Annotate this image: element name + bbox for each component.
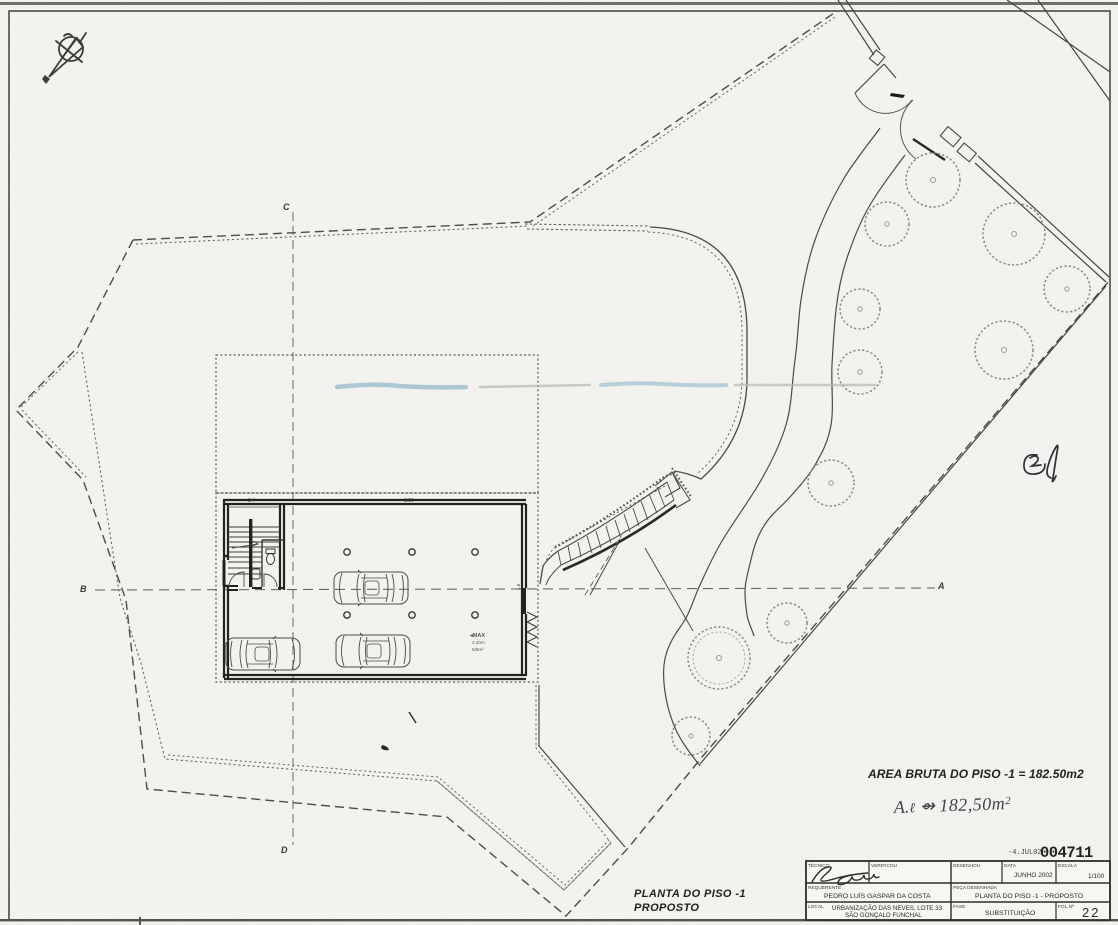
svg-text:REQUERENTE: REQUERENTE xyxy=(808,885,841,891)
svg-text:004711: 004711 xyxy=(1040,844,1093,862)
svg-text:22: 22 xyxy=(1082,905,1100,920)
svg-text:FOL.Nª: FOL.Nª xyxy=(1058,904,1074,910)
svg-text:2.40m: 2.40m xyxy=(472,640,485,645)
svg-text:FASE: FASE xyxy=(953,904,965,910)
svg-text:A: A xyxy=(937,581,945,591)
svg-text:PLANTA DO PISO -1 - PROPOSTO: PLANTA DO PISO -1 - PROPOSTO xyxy=(975,893,1083,900)
svg-text:◂MAX: ◂MAX xyxy=(469,633,485,639)
svg-text:1.5: 1.5 xyxy=(516,583,521,590)
svg-text:PEDRO LUÍS GASPAR DA COSTA: PEDRO LUÍS GASPAR DA COSTA xyxy=(824,891,931,900)
svg-text:DATA: DATA xyxy=(1004,863,1017,869)
svg-text:PROPOSTO: PROPOSTO xyxy=(634,902,699,914)
svg-text:C: C xyxy=(283,202,290,212)
svg-text:AREA BRUTA DO PISO -1 = 182.50: AREA BRUTA DO PISO -1 = 182.50m2 xyxy=(867,767,1084,781)
svg-text:3.4: 3.4 xyxy=(248,498,255,504)
svg-text:1/100: 1/100 xyxy=(1088,873,1105,880)
svg-text:8.06: 8.06 xyxy=(404,498,414,504)
svg-text:PLANTA DO PISO -1: PLANTA DO PISO -1 xyxy=(634,888,746,900)
svg-text:PEÇA DESENHADA: PEÇA DESENHADA xyxy=(953,885,998,891)
svg-text:SÃO GONÇALO FUNCHAL: SÃO GONÇALO FUNCHAL xyxy=(845,912,922,919)
svg-text:VERIFICOU: VERIFICOU xyxy=(871,863,898,869)
svg-text:JUNHO 2002: JUNHO 2002 xyxy=(1014,872,1053,879)
svg-text:LOCAL: LOCAL xyxy=(808,904,824,910)
svg-text:D: D xyxy=(281,845,288,855)
svg-text:URBANIZAÇÃO DAS NEVES, LOTE 33: URBANIZAÇÃO DAS NEVES, LOTE 33 xyxy=(832,905,943,912)
svg-text:-4.JUL02: -4.JUL02 xyxy=(1008,849,1042,857)
svg-text:5/8m²: 5/8m² xyxy=(472,647,484,652)
svg-text:1.8: 1.8 xyxy=(222,641,227,648)
svg-text:B: B xyxy=(80,584,87,594)
svg-text:SUBSTITUIÇÃO: SUBSTITUIÇÃO xyxy=(985,908,1035,917)
svg-text:ESCALA: ESCALA xyxy=(1058,863,1078,869)
svg-text:DESENHOU: DESENHOU xyxy=(953,863,981,869)
